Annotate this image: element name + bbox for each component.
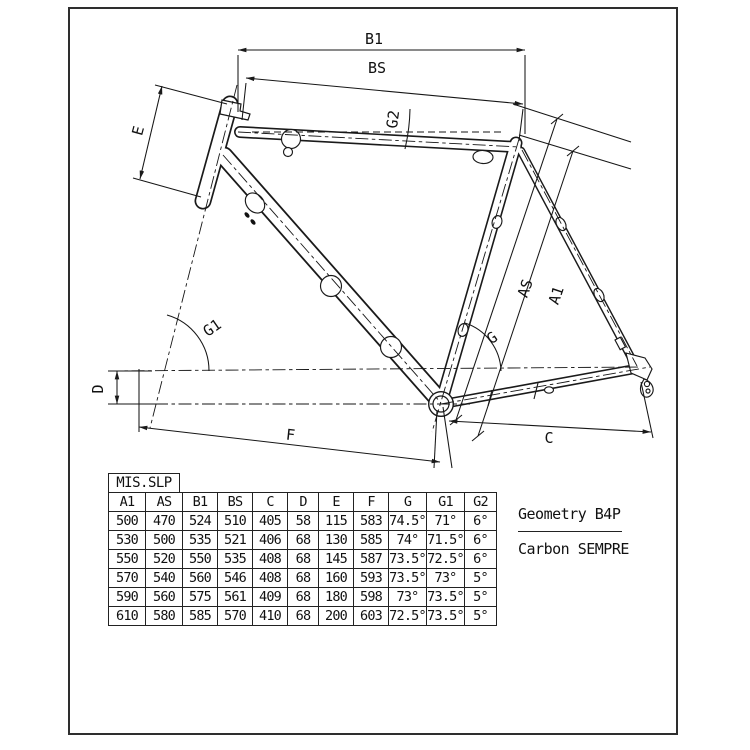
dim-label-a1: A1 — [545, 284, 568, 307]
table-cell: 550 — [183, 550, 218, 569]
col-header-c: C — [253, 493, 288, 512]
tube-detail-ports — [241, 130, 606, 394]
table-cell: 580 — [146, 607, 183, 626]
geometry-table: A1ASB1BSCDEFGG1G2 5004705245104055811558… — [108, 492, 497, 626]
table-cell: 585 — [183, 607, 218, 626]
table-cell: 73.5° — [389, 569, 427, 588]
table-cell: 74.5° — [389, 512, 427, 531]
table-cell: 470 — [146, 512, 183, 531]
dim-label-f: F — [285, 426, 296, 445]
table-cell: 520 — [146, 550, 183, 569]
table-cell: 408 — [253, 569, 288, 588]
annotation-title: Geometry B4P — [518, 505, 622, 532]
table-cell: 6° — [465, 512, 497, 531]
table-cell: 587 — [354, 550, 389, 569]
table-cell: 610 — [109, 607, 146, 626]
table-cell: 68 — [288, 550, 319, 569]
table-cell: 68 — [288, 607, 319, 626]
table-cell: 72.5° — [427, 550, 465, 569]
col-header-e: E — [319, 493, 354, 512]
table-cell: 550 — [109, 550, 146, 569]
table-cell: 406 — [253, 531, 288, 550]
cable-stops — [243, 211, 256, 225]
table-cell: 540 — [146, 569, 183, 588]
table-cell: 598 — [354, 588, 389, 607]
table-cell: 68 — [288, 588, 319, 607]
col-header-as: AS — [146, 493, 183, 512]
table-cell: 575 — [183, 588, 218, 607]
col-header-g: G — [389, 493, 427, 512]
dim-label-bs: BS — [368, 59, 386, 77]
table-cell: 408 — [253, 550, 288, 569]
table-cell: 130 — [319, 531, 354, 550]
table-cell: 530 — [109, 531, 146, 550]
table-cell: 6° — [465, 531, 497, 550]
col-header-d: D — [288, 493, 319, 512]
table-cell: 546 — [218, 569, 253, 588]
dim-label-e: E — [128, 124, 148, 137]
annotation-block: Geometry B4P Carbon SEMPRE — [518, 505, 629, 558]
dim-label-g: G — [483, 328, 501, 348]
table-row: 6105805855704106820060372.5°73.5°5° — [109, 607, 497, 626]
table-cell: 68 — [288, 531, 319, 550]
col-header-f: F — [354, 493, 389, 512]
frame-tubes-outline — [203, 104, 635, 404]
table-cell: 603 — [354, 607, 389, 626]
table-cell: 500 — [109, 512, 146, 531]
table-cell: 524 — [183, 512, 218, 531]
table-cell: 570 — [109, 569, 146, 588]
table-cell: 74° — [389, 531, 427, 550]
table-cell: 180 — [319, 588, 354, 607]
table-cell: 593 — [354, 569, 389, 588]
table-cell: 58 — [288, 512, 319, 531]
table-cell: 409 — [253, 588, 288, 607]
table-cell: 200 — [319, 607, 354, 626]
table-cell: 145 — [319, 550, 354, 569]
table-header-row: A1ASB1BSCDEFGG1G2 — [109, 493, 497, 512]
table-cell: 510 — [218, 512, 253, 531]
table-cell: 410 — [253, 607, 288, 626]
table-cell: 561 — [218, 588, 253, 607]
table-row: 5505205505354086814558773.5°72.5°6° — [109, 550, 497, 569]
col-header-g2: G2 — [465, 493, 497, 512]
dimension-lines — [108, 50, 653, 468]
table-cell: 535 — [183, 531, 218, 550]
dim-label-d: D — [89, 384, 107, 393]
table-cell: 560 — [146, 588, 183, 607]
table-cell: 72.5° — [389, 607, 427, 626]
col-header-b1: B1 — [183, 493, 218, 512]
table-cell: 583 — [354, 512, 389, 531]
dim-label-c: C — [544, 429, 553, 447]
annotation-subtitle: Carbon SEMPRE — [518, 540, 629, 558]
table-cell: 73.5° — [389, 550, 427, 569]
table-row: 5705405605464086816059373.5°73°5° — [109, 569, 497, 588]
table-row: 5004705245104055811558374.5°71°6° — [109, 512, 497, 531]
table-cell: 160 — [319, 569, 354, 588]
table-title-tab: MIS.SLP — [108, 473, 180, 494]
geometry-table-block: MIS.SLP A1ASB1BSCDEFGG1G2 50047052451040… — [108, 473, 497, 626]
frame-tubes-inner — [203, 104, 635, 404]
table-cell: 521 — [218, 531, 253, 550]
table-cell: 68 — [288, 569, 319, 588]
bike-frame-drawing: B1 BS G2 E AS A1 G G1 D F C — [0, 0, 750, 750]
table-cell: 73° — [389, 588, 427, 607]
col-header-bs: BS — [218, 493, 253, 512]
col-header-a1: A1 — [109, 493, 146, 512]
col-header-g1: G1 — [427, 493, 465, 512]
table-cell: 500 — [146, 531, 183, 550]
table-cell: 73° — [427, 569, 465, 588]
table-cell: 71° — [427, 512, 465, 531]
dim-label-g2: G2 — [383, 109, 403, 129]
table-cell: 405 — [253, 512, 288, 531]
dim-label-b1: B1 — [365, 30, 383, 48]
table-cell: 585 — [354, 531, 389, 550]
table-cell: 570 — [218, 607, 253, 626]
dim-label-g1: G1 — [200, 315, 225, 340]
table-row: 5905605755614096818059873°73.5°5° — [109, 588, 497, 607]
table-cell: 5° — [465, 569, 497, 588]
table-cell: 73.5° — [427, 588, 465, 607]
table-cell: 6° — [465, 550, 497, 569]
table-cell: 71.5° — [427, 531, 465, 550]
table-cell: 560 — [183, 569, 218, 588]
table-row: 5305005355214066813058574°71.5°6° — [109, 531, 497, 550]
table-cell: 590 — [109, 588, 146, 607]
table-cell: 5° — [465, 607, 497, 626]
table-cell: 5° — [465, 588, 497, 607]
page: B1 BS G2 E AS A1 G G1 D F C MIS.SLP A1AS… — [0, 0, 750, 750]
dim-label-as: AS — [514, 277, 537, 300]
table-cell: 535 — [218, 550, 253, 569]
table-cell: 115 — [319, 512, 354, 531]
table-cell: 73.5° — [427, 607, 465, 626]
